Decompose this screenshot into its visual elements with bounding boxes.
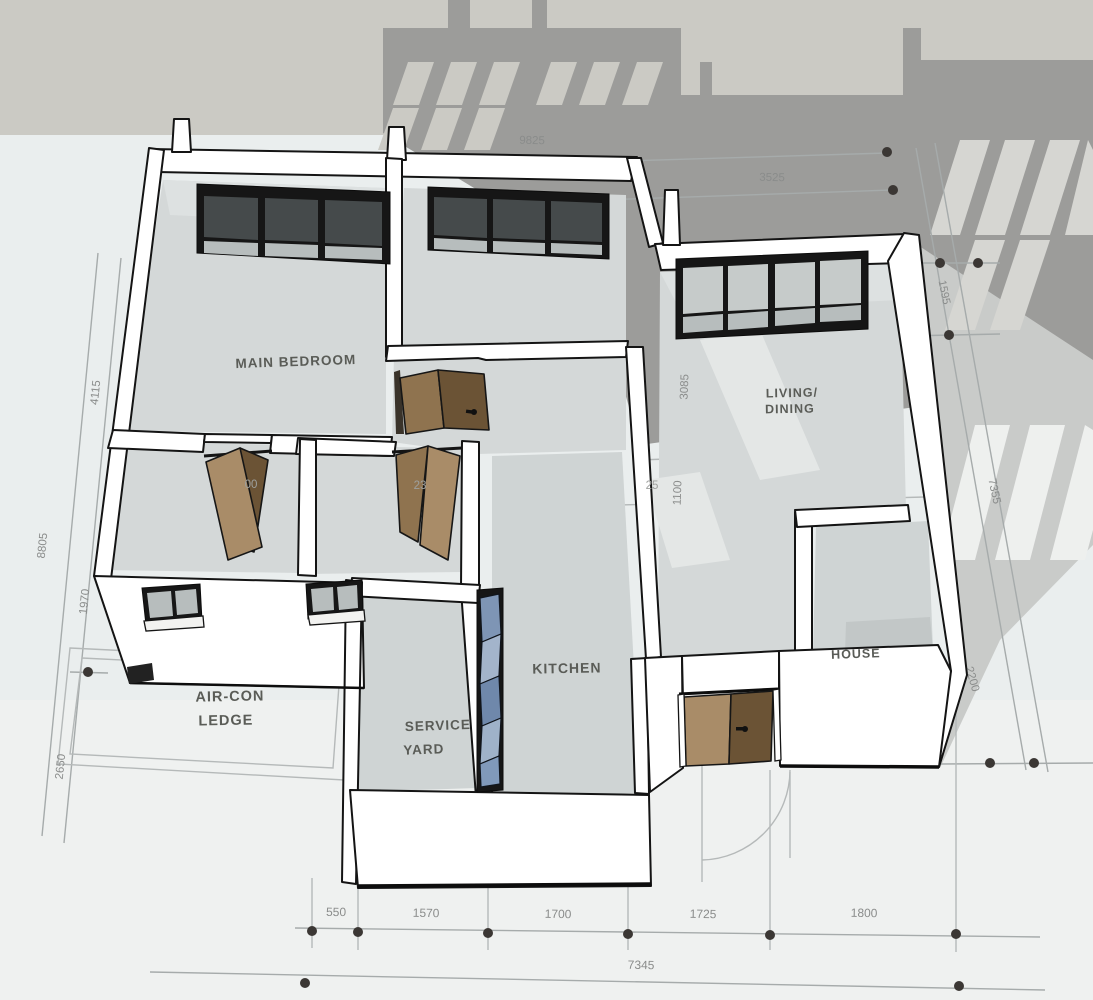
ledge-window-2 [306, 580, 365, 625]
dimension-label-00: 00 [245, 479, 258, 491]
dimension-label-9825: 9825 [519, 135, 545, 147]
main-bedroom-window [197, 184, 390, 264]
ledge-window-1 [142, 584, 204, 631]
dimension-label-4115: 4115 [89, 380, 104, 406]
dimension-label-550: 550 [326, 905, 347, 919]
dimension-label-1570: 1570 [413, 906, 440, 920]
room-label-living-dining-1: LIVING/ [766, 386, 818, 401]
kitchen-floor [492, 452, 641, 798]
bedroom3-floor [101, 442, 300, 573]
living-room-window [676, 251, 868, 339]
dimension-label-1700: 1700 [545, 907, 572, 921]
wall-stub-left [172, 119, 191, 152]
room-label-household-shelter-partial: HOUSE [831, 646, 881, 662]
room-label-service-yard-1: SERVICE [405, 717, 472, 734]
room-label-aircon-ledge-1: AIR-CON [195, 688, 264, 705]
wall-stub-mid [387, 127, 406, 160]
dimension-label-1100: 1100 [672, 480, 685, 505]
bedroom2-door [394, 370, 489, 434]
service-yard-louver-window [477, 588, 503, 792]
entrance-door [678, 689, 781, 767]
dimension-label-23: 23 [414, 480, 427, 492]
floor-plan-svg: 9825352555015701700172518007345880519702… [0, 0, 1093, 1000]
room-label-living-dining-2: DINING [765, 402, 815, 417]
dimension-label-3085: 3085 [679, 374, 692, 400]
dimension-label-25: 25 [646, 480, 659, 492]
dimension-label-3525: 3525 [759, 172, 785, 184]
entrance-wall [779, 645, 951, 767]
service-yard-floor [353, 588, 478, 792]
room-label-service-yard-2: YARD [403, 741, 445, 757]
floor-plan-scene: 9825352555015701700172518007345880519702… [0, 0, 1093, 1000]
south-wall [350, 790, 651, 888]
bedroom2-window [428, 187, 609, 259]
room-label-aircon-ledge-2: LEDGE [198, 713, 253, 730]
room-label-kitchen: KITCHEN [532, 659, 602, 676]
dimension-label-1800: 1800 [851, 906, 878, 920]
dimension-label-7345: 7345 [628, 958, 655, 972]
dimension-label-1725: 1725 [690, 907, 717, 921]
